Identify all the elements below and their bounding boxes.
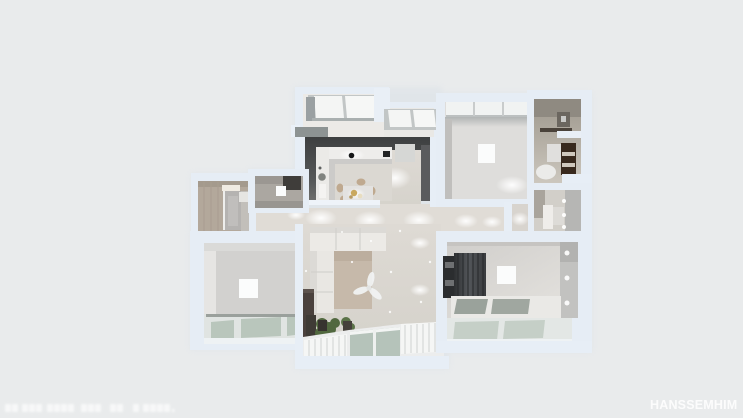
svg-text:HANSSEMHIM: HANSSEMHIM	[650, 398, 737, 412]
